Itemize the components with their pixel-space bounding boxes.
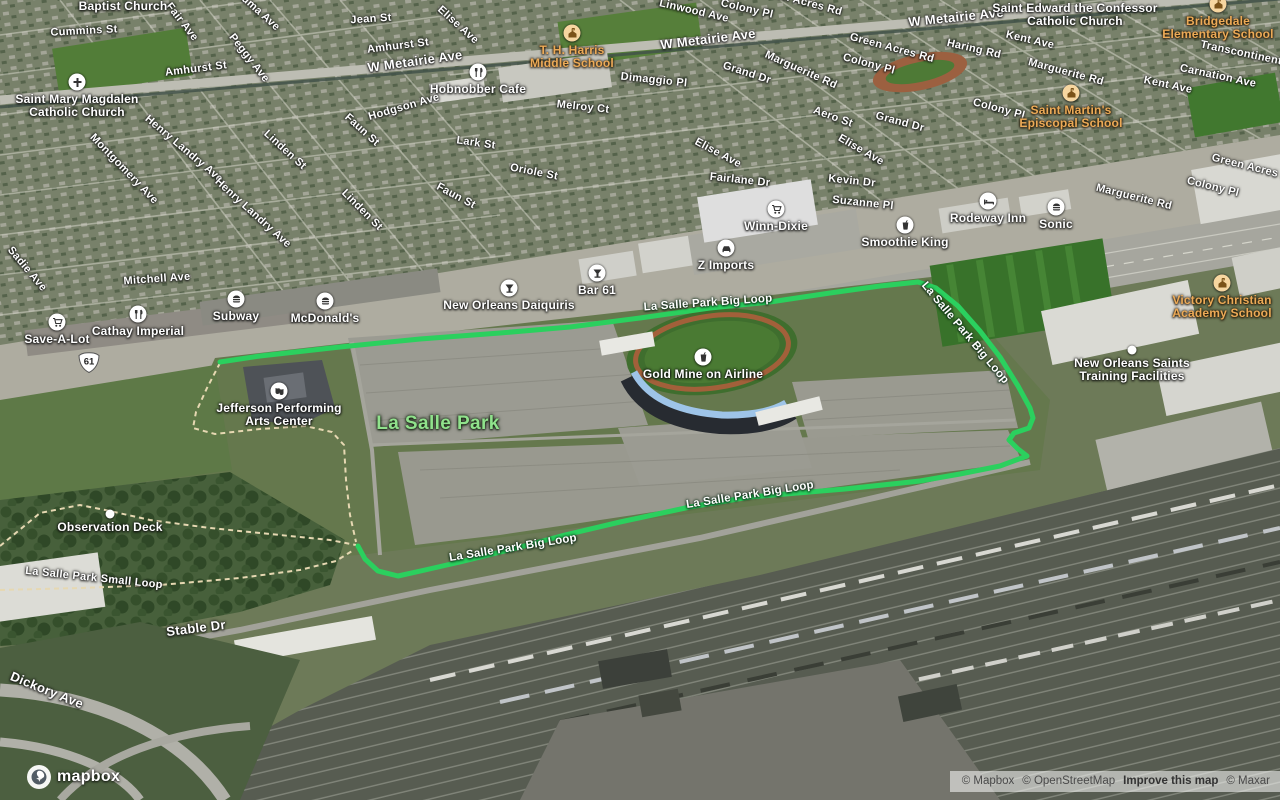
mapbox-logo[interactable]: mapbox [26,764,120,790]
attribution-link-mapbox[interactable]: © Mapbox [962,771,1015,792]
attribution-link-openstreetmap[interactable]: © OpenStreetMap [1022,771,1115,792]
mapbox-logo-text: mapbox [57,768,120,786]
mapbox-logo-icon [26,764,52,790]
attribution-bar: © Mapbox© OpenStreetMapImprove this map©… [950,771,1280,792]
map-canvas[interactable]: Cummins StFair AveHouma AvePeggy AveJean… [0,0,1280,800]
satellite-basemap [0,0,1280,800]
attribution-link-improve-this-map[interactable]: Improve this map [1123,771,1218,792]
attribution-link-maxar[interactable]: © Maxar [1226,771,1270,792]
